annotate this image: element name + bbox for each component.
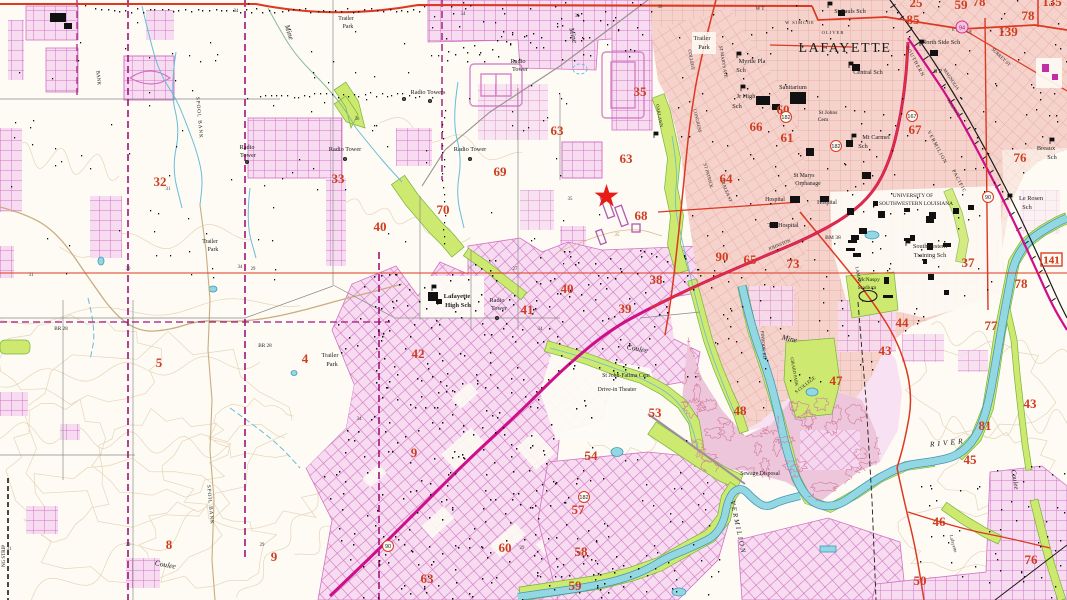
svg-text:43: 43	[879, 343, 893, 358]
svg-text:St Marys: St Marys	[793, 173, 815, 179]
svg-text:Radio Towers: Radio Towers	[411, 89, 446, 96]
svg-text:Tower: Tower	[512, 66, 529, 73]
svg-text:Jr High: Jr High	[737, 93, 757, 100]
svg-text:29: 29	[126, 543, 131, 548]
svg-text:41: 41	[521, 302, 534, 317]
svg-text:27: 27	[513, 267, 518, 272]
svg-text:135: 135	[1042, 0, 1062, 9]
svg-text:37: 37	[962, 255, 976, 270]
svg-text:Park: Park	[343, 24, 354, 30]
svg-text:Le Rosen: Le Rosen	[1019, 195, 1044, 202]
svg-text:SOUTHWESTERN LOUISIANA: SOUTHWESTERN LOUISIANA	[879, 201, 953, 207]
svg-text:31: 31	[7, 547, 12, 552]
svg-text:Drive-in Theater: Drive-in Theater	[598, 387, 637, 393]
svg-text:BM 38: BM 38	[825, 235, 841, 241]
svg-text:34: 34	[357, 417, 362, 422]
svg-text:46: 46	[933, 514, 947, 529]
svg-text:Park: Park	[698, 44, 710, 51]
svg-text:42: 42	[412, 346, 425, 361]
svg-text:Trailer: Trailer	[202, 239, 218, 245]
svg-text:43: 43	[1024, 396, 1038, 411]
svg-text:36: 36	[658, 5, 663, 10]
svg-text:182: 182	[579, 495, 588, 501]
svg-text:38: 38	[650, 272, 664, 287]
svg-text:81: 81	[979, 418, 992, 433]
svg-text:90: 90	[385, 544, 391, 550]
svg-text:40: 40	[561, 281, 574, 296]
svg-text:W T: W T	[756, 7, 765, 12]
svg-text:78: 78	[1015, 276, 1029, 291]
svg-text:35: 35	[634, 84, 648, 99]
svg-text:UNIVERSITY OF: UNIVERSITY OF	[893, 193, 933, 199]
svg-text:59: 59	[955, 0, 969, 12]
svg-text:34: 34	[461, 12, 466, 17]
svg-text:Park: Park	[326, 361, 338, 368]
svg-text:Sch: Sch	[732, 103, 742, 110]
svg-text:OLIVER: OLIVER	[822, 30, 845, 35]
svg-text:58: 58	[575, 544, 589, 559]
svg-text:36: 36	[355, 117, 360, 122]
svg-text:63: 63	[551, 123, 565, 138]
svg-text:76: 76	[1014, 150, 1028, 165]
svg-text:Trailer: Trailer	[694, 35, 712, 42]
svg-text:St Johns: St Johns	[819, 110, 838, 116]
svg-text:Trailer: Trailer	[322, 352, 340, 359]
svg-text:139: 139	[998, 24, 1018, 39]
svg-text:60: 60	[499, 540, 512, 555]
svg-text:Mt Carmel: Mt Carmel	[862, 134, 890, 141]
svg-text:Radio: Radio	[510, 58, 525, 65]
svg-text:64: 64	[720, 171, 734, 186]
svg-text:9: 9	[271, 549, 278, 564]
svg-text:Sch: Sch	[858, 143, 868, 150]
svg-text:32: 32	[154, 174, 167, 189]
svg-text:BR 28: BR 28	[54, 326, 68, 332]
svg-text:63: 63	[421, 571, 435, 586]
svg-text:BR 28: BR 28	[258, 343, 272, 349]
svg-text:182: 182	[781, 115, 790, 121]
svg-text:63: 63	[620, 151, 634, 166]
svg-text:Breaux: Breaux	[1037, 145, 1056, 152]
svg-text:182: 182	[831, 144, 840, 150]
svg-text:59: 59	[569, 578, 583, 593]
svg-text:76: 76	[1025, 552, 1039, 567]
svg-text:5: 5	[156, 355, 163, 370]
svg-text:Training Sch: Training Sch	[914, 252, 947, 259]
svg-text:4: 4	[302, 351, 309, 366]
svg-text:33: 33	[332, 171, 346, 186]
svg-text:48: 48	[734, 403, 748, 418]
svg-text:94: 94	[959, 26, 965, 32]
svg-text:36: 36	[575, 14, 580, 19]
svg-text:Tower: Tower	[240, 152, 257, 159]
svg-text:85: 85	[907, 12, 921, 27]
svg-text:47: 47	[830, 373, 844, 388]
svg-text:S P: S P	[934, 69, 943, 75]
svg-text:78: 78	[1022, 8, 1036, 23]
svg-text:44: 44	[896, 315, 910, 330]
svg-text:70: 70	[437, 202, 450, 217]
svg-text:69: 69	[494, 164, 508, 179]
svg-text:29: 29	[260, 543, 265, 548]
svg-text:30: 30	[126, 267, 131, 272]
svg-text:57: 57	[572, 502, 586, 517]
svg-text:29: 29	[520, 546, 525, 551]
svg-text:Sewage Disposal: Sewage Disposal	[740, 471, 780, 477]
svg-text:Hospital: Hospital	[765, 197, 785, 203]
svg-text:Hospital: Hospital	[817, 200, 837, 206]
svg-text:29: 29	[251, 267, 256, 272]
svg-text:35: 35	[615, 233, 621, 238]
svg-text:Lafayette: Lafayette	[444, 293, 471, 300]
svg-text:66: 66	[750, 119, 764, 134]
svg-text:High Sch: High Sch	[445, 302, 471, 309]
svg-text:31: 31	[29, 273, 34, 278]
svg-text:141: 141	[1043, 255, 1060, 267]
svg-text:St John-Fatima Cem: St John-Fatima Cem	[602, 373, 650, 379]
svg-text:St Pauls Sch: St Pauls Sch	[834, 8, 866, 15]
svg-text:34: 34	[538, 327, 543, 332]
svg-text:73: 73	[787, 256, 801, 271]
svg-text:Radio Tower: Radio Tower	[454, 146, 487, 153]
svg-text:Sch: Sch	[1047, 154, 1057, 161]
svg-text:77: 77	[985, 318, 999, 333]
svg-text:Radio Tower: Radio Tower	[329, 146, 362, 153]
svg-text:T B Hospital: T B Hospital	[768, 223, 799, 229]
svg-text:50: 50	[914, 573, 927, 588]
svg-text:45: 45	[964, 452, 978, 467]
svg-text:68: 68	[635, 208, 649, 223]
svg-text:90: 90	[716, 249, 729, 264]
svg-text:34: 34	[234, 9, 239, 14]
svg-text:40: 40	[374, 219, 387, 234]
svg-text:8: 8	[166, 537, 173, 552]
svg-text:35: 35	[568, 197, 573, 202]
svg-text:Sch: Sch	[736, 67, 746, 74]
svg-text:Myrtle Pla: Myrtle Pla	[739, 58, 766, 65]
svg-text:Stadium: Stadium	[858, 285, 877, 291]
svg-text:54: 54	[585, 448, 599, 463]
svg-text:LAFAYETTE: LAFAYETTE	[799, 41, 892, 56]
svg-text:34: 34	[238, 265, 243, 270]
svg-text:67: 67	[909, 122, 923, 137]
svg-text:North Side Sch: North Side Sch	[922, 39, 961, 46]
svg-text:Cem: Cem	[818, 117, 829, 123]
svg-text:61: 61	[781, 130, 794, 145]
svg-text:25: 25	[910, 0, 924, 10]
svg-text:65: 65	[744, 252, 758, 267]
svg-text:Southwestern: Southwestern	[913, 243, 948, 250]
svg-text:Radio: Radio	[239, 144, 254, 151]
svg-text:W SIMCOE: W SIMCOE	[785, 20, 815, 25]
svg-text:Tower: Tower	[491, 305, 508, 312]
svg-text:Radio: Radio	[489, 297, 504, 304]
svg-text:39: 39	[619, 301, 633, 316]
svg-text:53: 53	[649, 405, 663, 420]
svg-text:9: 9	[411, 445, 418, 460]
svg-text:167: 167	[907, 114, 916, 120]
svg-text:Sch: Sch	[1022, 204, 1032, 211]
svg-text:Sanitarium: Sanitarium	[779, 84, 807, 91]
svg-text:Park: Park	[208, 247, 219, 253]
svg-text:Central Sch: Central Sch	[853, 69, 883, 76]
svg-text:Trailer: Trailer	[338, 16, 354, 22]
svg-text:Orphanage: Orphanage	[795, 181, 821, 187]
svg-text:90: 90	[985, 195, 991, 201]
svg-text:78: 78	[973, 0, 987, 9]
